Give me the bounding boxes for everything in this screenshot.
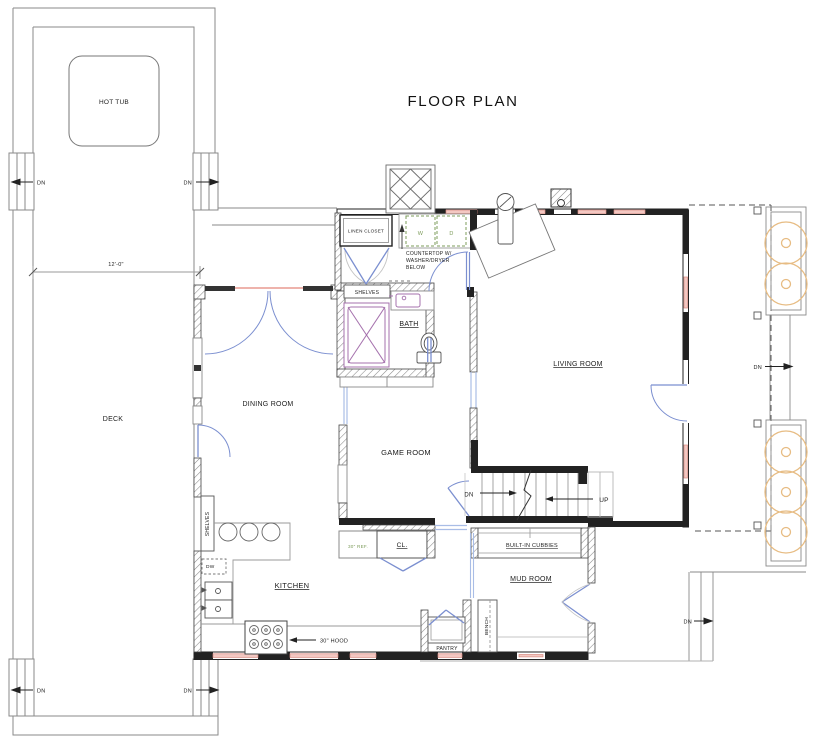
- dn-label-bottom-right: DN: [684, 620, 692, 626]
- dn-label-right-deck: DN: [754, 365, 762, 371]
- dining-room-label: DINING ROOM: [243, 401, 294, 408]
- deck-stair-landings: [9, 153, 218, 716]
- kitchen-sink: [202, 582, 232, 618]
- pantry-label: PANTRY: [436, 646, 458, 652]
- dn-label-deck-bottom-right: DN: [184, 689, 192, 695]
- shower: [344, 303, 389, 367]
- right-deck: [420, 205, 807, 661]
- closet-label: CL.: [397, 542, 408, 549]
- bath-sink: [389, 291, 434, 310]
- cubbies-label: BUILT-IN CUBBIES: [506, 543, 558, 549]
- dn-label-deck-top-left: DN: [37, 181, 45, 187]
- dining-french-doors[interactable]: [194, 285, 342, 354]
- countertop-note-line1: COUNTERTOP W/: [406, 251, 452, 257]
- living-room-label: LIVING ROOM: [553, 361, 602, 368]
- dn-label-deck-top-right: DN: [184, 181, 192, 187]
- chimney: [551, 189, 571, 207]
- ref-label: 30" REF.: [348, 544, 368, 549]
- skylight: [386, 165, 435, 213]
- living-entry-door[interactable]: [651, 385, 687, 421]
- game-room-label: GAME ROOM: [381, 448, 431, 457]
- deck-label: DECK: [103, 416, 124, 423]
- deck-to-dining-door[interactable]: [198, 425, 230, 457]
- hood-label: 30" HOOD: [320, 639, 348, 645]
- stairs[interactable]: [466, 440, 613, 523]
- page-title: FLOOR PLAN: [407, 93, 518, 110]
- range: [245, 621, 287, 654]
- dn-label-deck-bottom-left: DN: [37, 689, 45, 695]
- countertop-note-line2: WASHER/DRYER: [406, 258, 450, 264]
- deck-down-arrows: [12, 179, 218, 693]
- mud-room-label: MUD ROOM: [510, 576, 552, 583]
- washer-label: W: [418, 231, 424, 237]
- washer-dryer-counter: [399, 214, 473, 249]
- bath-shelves-label: SHELVES: [355, 290, 380, 296]
- bench-label: BENCH: [484, 617, 490, 635]
- mud-room-exterior-door[interactable]: [562, 584, 590, 622]
- exterior-walls: [194, 209, 690, 660]
- wood-stove: [469, 194, 555, 279]
- hot-tub-label: HOT TUB: [99, 99, 129, 106]
- bath-label: BATH: [399, 321, 418, 328]
- up-label-stairs: UP: [599, 497, 609, 504]
- kitchen-shelves-label: SHELVES: [205, 511, 211, 536]
- right-deck-down-arrows: [694, 364, 792, 624]
- dn-label-stairs: DN: [464, 493, 473, 499]
- kitchen-label: KITCHEN: [275, 581, 310, 590]
- linen-closet: [335, 213, 392, 290]
- toilet: [417, 333, 441, 363]
- floor-plan-canvas: FLOOR PLAN HOT TUB DECK 12'-0" DN DN DN …: [0, 0, 826, 743]
- west-wall: [193, 287, 202, 652]
- dw-label: DW: [206, 564, 215, 570]
- countertop-note-line3: BELOW: [406, 265, 425, 271]
- linen-closet-label: LINEN CLOSET: [348, 229, 384, 234]
- dryer-label: D: [449, 231, 453, 237]
- deck-dimension-label: 12'-0": [108, 262, 124, 268]
- floor-plan-sheet: FLOOR PLAN HOT TUB DECK 12'-0" DN DN DN …: [0, 0, 826, 743]
